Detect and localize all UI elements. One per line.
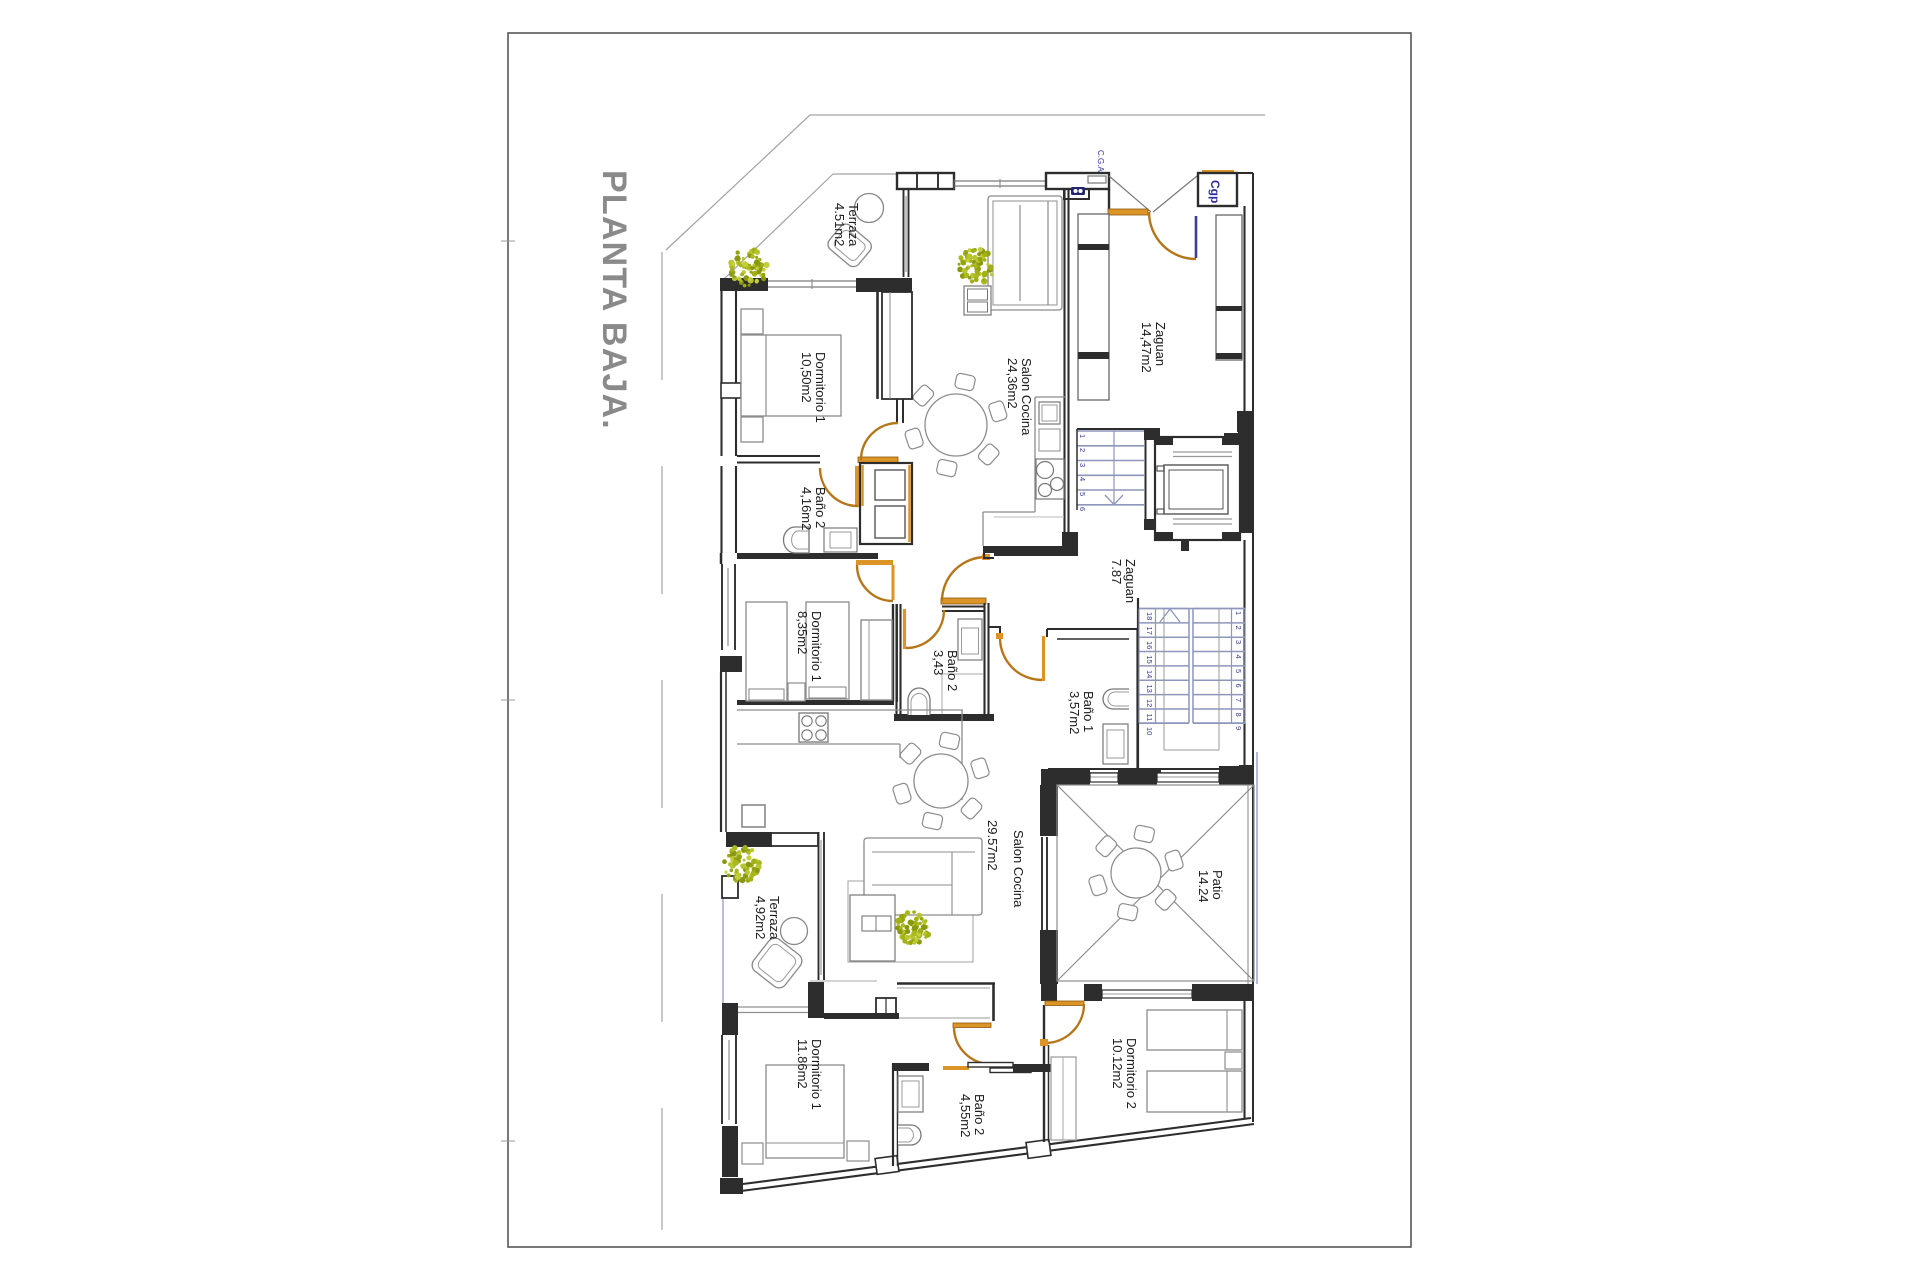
- svg-text:12: 12: [1145, 699, 1154, 707]
- svg-text:Salon Cocina: Salon Cocina: [1011, 830, 1026, 908]
- svg-text:4: 4: [1078, 477, 1087, 481]
- svg-text:1: 1: [1234, 611, 1243, 615]
- svg-text:Terraza4,92m2: Terraza4,92m2: [753, 896, 782, 940]
- svg-text:5: 5: [1078, 492, 1087, 496]
- svg-text:15: 15: [1145, 656, 1154, 664]
- svg-text:9: 9: [1234, 726, 1243, 730]
- svg-text:Terraza4.51m2: Terraza4.51m2: [832, 203, 861, 247]
- svg-text:3: 3: [1234, 640, 1243, 644]
- svg-text:7: 7: [1234, 698, 1243, 702]
- svg-text:Zaguan14,47m2: Zaguan14,47m2: [1139, 322, 1168, 373]
- svg-text:Baño 13,57m2: Baño 13,57m2: [1067, 691, 1096, 734]
- svg-text:Baño 24,55m2: Baño 24,55m2: [958, 1094, 987, 1137]
- svg-text:18: 18: [1145, 612, 1154, 620]
- svg-text:1: 1: [1078, 434, 1087, 438]
- svg-text:5: 5: [1234, 669, 1243, 673]
- svg-text:Patio14.24: Patio14.24: [1196, 870, 1225, 903]
- svg-text:6: 6: [1234, 684, 1243, 688]
- svg-text:2: 2: [1078, 448, 1087, 452]
- svg-text:11: 11: [1145, 714, 1154, 722]
- svg-text:C.G.A: C.G.A: [1096, 150, 1105, 172]
- svg-text:3: 3: [1078, 463, 1087, 467]
- svg-text:13: 13: [1145, 685, 1154, 693]
- svg-text:16: 16: [1145, 641, 1154, 649]
- svg-text:2: 2: [1234, 626, 1243, 630]
- svg-text:14: 14: [1145, 670, 1154, 678]
- svg-text:PLANTA BAJA.: PLANTA BAJA.: [595, 170, 633, 430]
- svg-text:6: 6: [1078, 507, 1087, 511]
- svg-text:29.57m2: 29.57m2: [985, 820, 1000, 871]
- svg-text:Baño 24,16m2: Baño 24,16m2: [799, 487, 828, 530]
- svg-text:10: 10: [1145, 727, 1154, 735]
- svg-text:4: 4: [1234, 655, 1243, 659]
- svg-text:17: 17: [1145, 627, 1154, 635]
- svg-text:Cgp: Cgp: [1208, 180, 1222, 203]
- svg-text:8: 8: [1234, 713, 1243, 717]
